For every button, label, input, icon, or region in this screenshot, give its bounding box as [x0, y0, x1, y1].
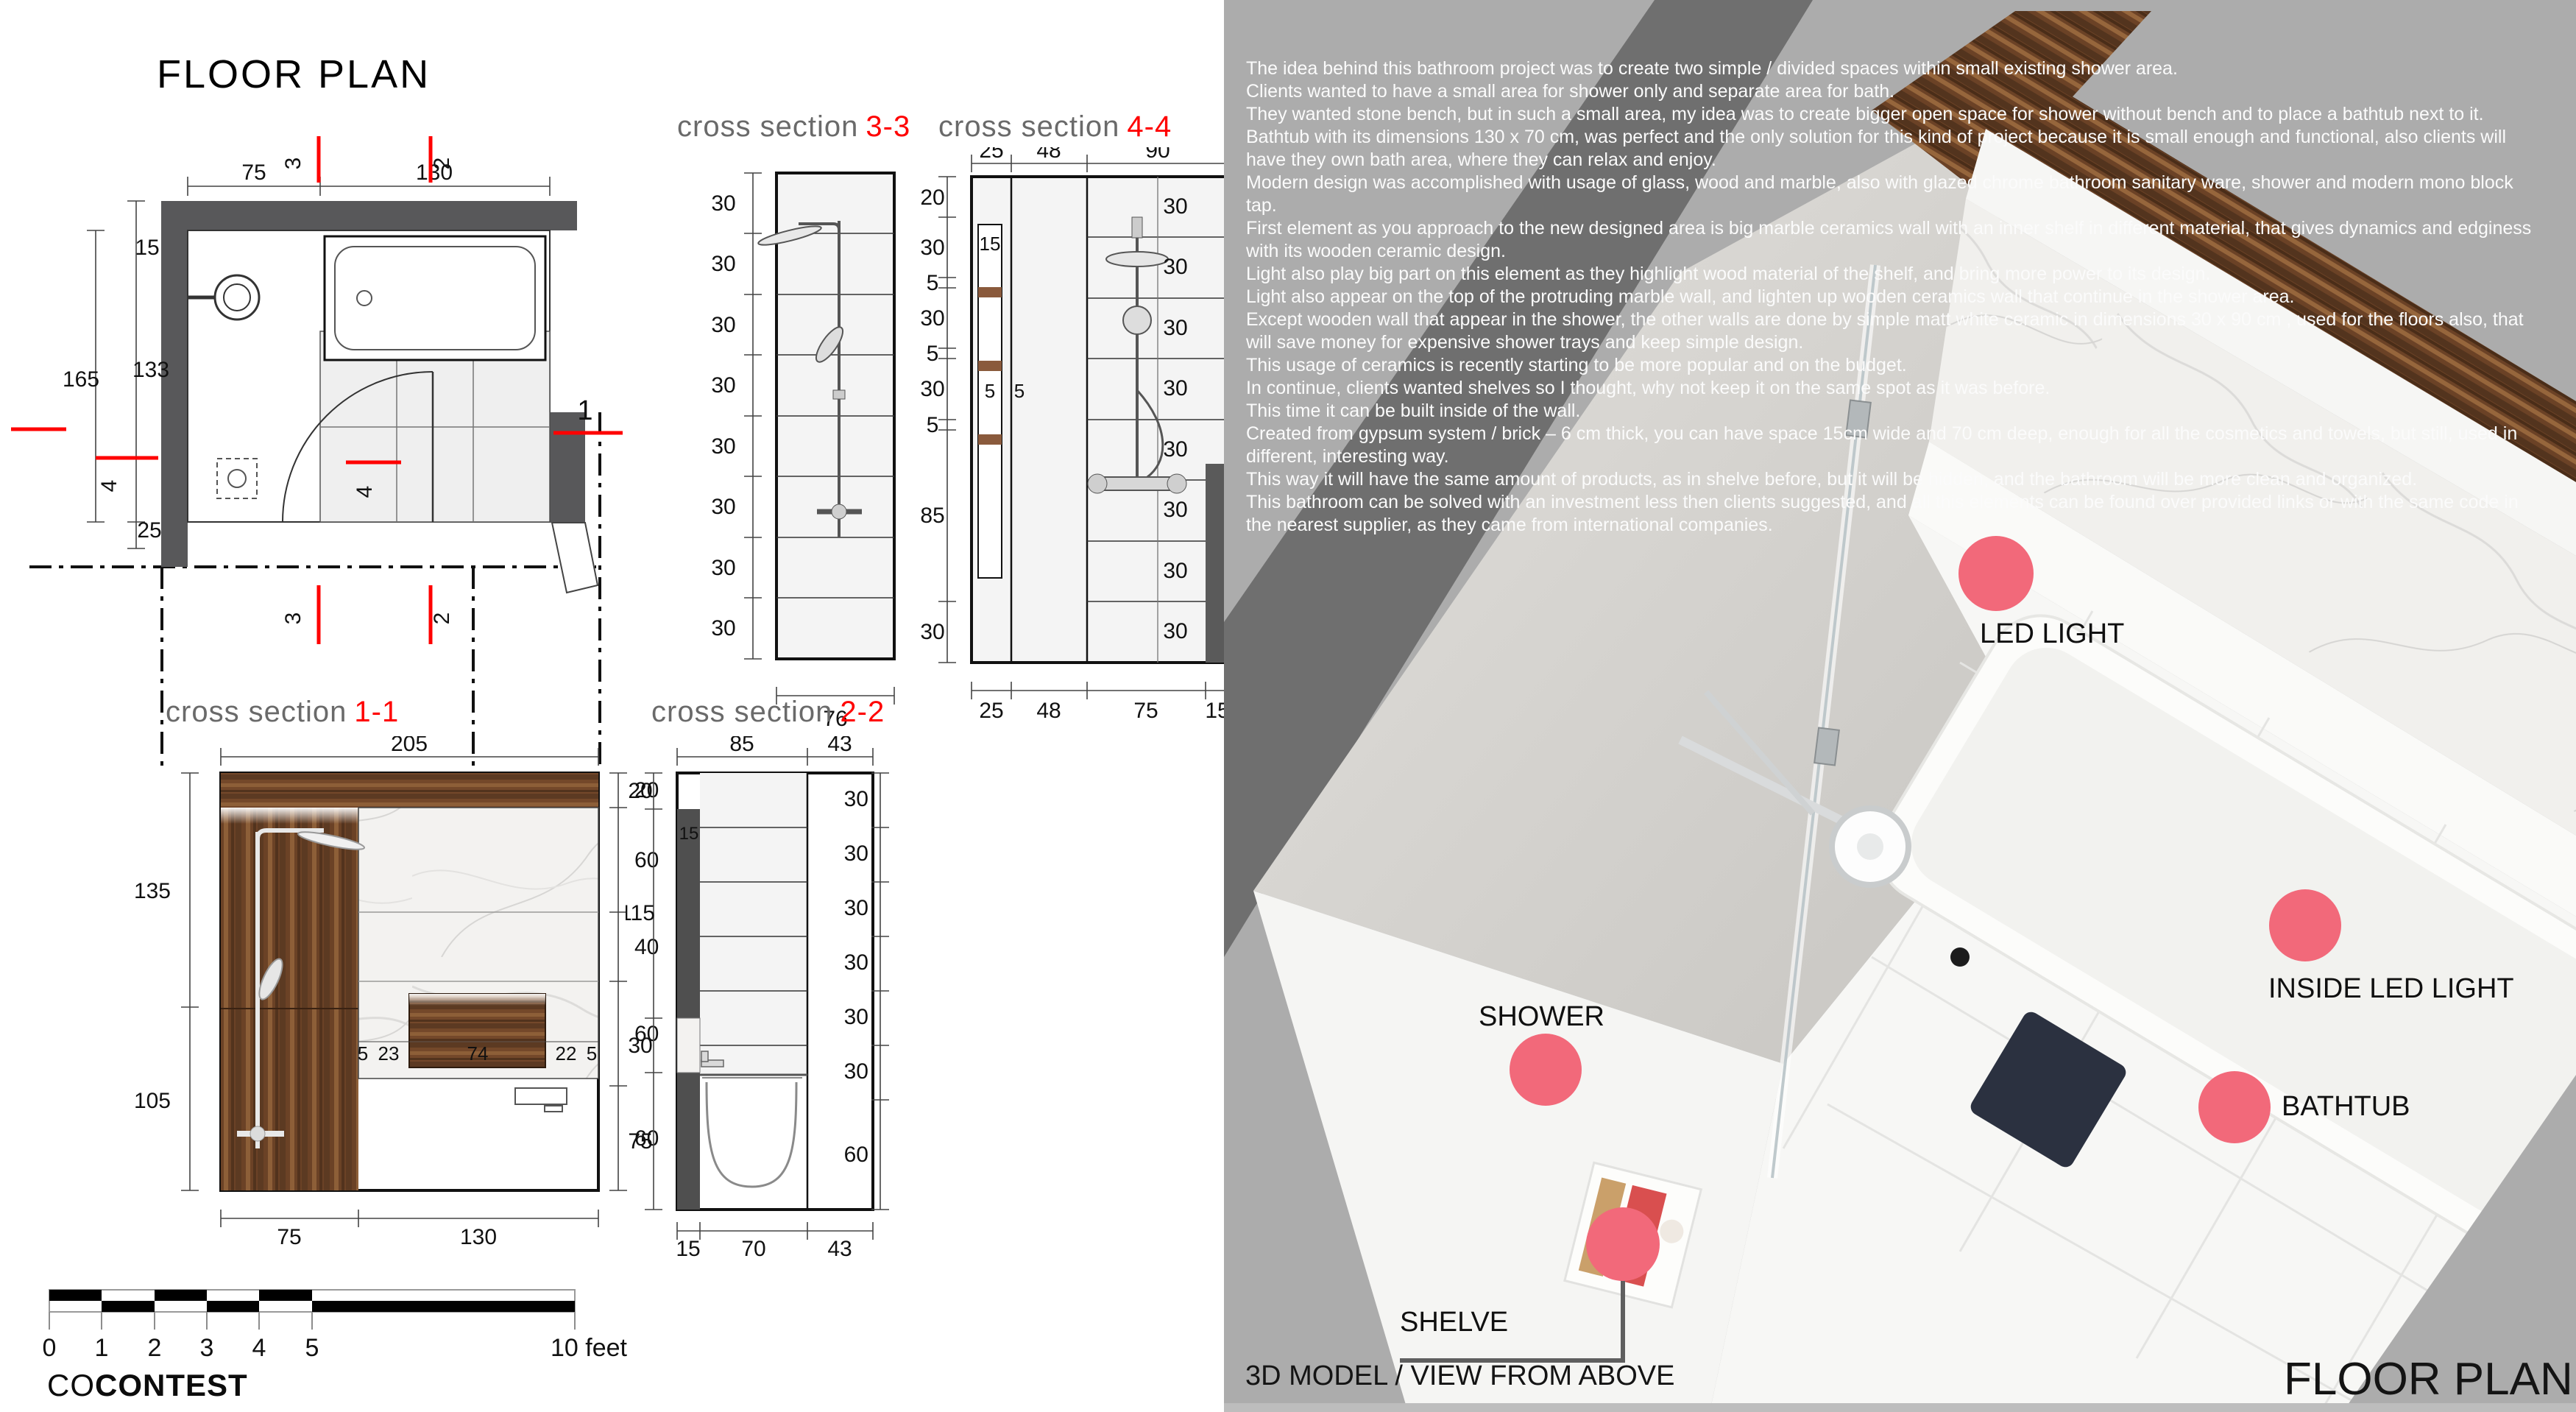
dim-label: 30: [711, 252, 735, 276]
dim-label: 5: [985, 380, 995, 402]
dim-label: 30: [1163, 559, 1187, 583]
dim-label: 30: [920, 236, 944, 260]
led-light-dot: [1958, 536, 2034, 611]
desc-line: Except wooden wall that appear in the sh…: [1246, 308, 2543, 354]
dim-label: 15: [679, 824, 699, 844]
dim-label: 30: [920, 377, 944, 401]
dim-label: 15: [135, 236, 159, 260]
dim-label: 165: [63, 367, 99, 392]
drain-dot: [1950, 947, 1970, 967]
dim-label: 43: [827, 736, 852, 756]
desc-line: This usage of ceramics is recently start…: [1246, 354, 2543, 377]
dim-label: 30: [711, 191, 735, 216]
dim-label: 85: [920, 504, 944, 528]
bathtub-label: BATHTUB: [2282, 1091, 2410, 1123]
dim-label: 30: [1163, 619, 1187, 643]
desc-line: First element as you approach to the new…: [1246, 217, 2543, 263]
desc-line: Created from gypsum system / brick – 6 c…: [1246, 423, 2543, 468]
cs22-drawing: 85 43 20 115 30 75 15 30 30 30 30 30 30 …: [626, 736, 891, 1266]
cs11-drawing: 205 135 105 20 60 40 60 60 5 23 74 22 5 …: [103, 736, 692, 1252]
page-title: FLOOR PLAN: [157, 52, 431, 97]
dim-label: 205: [391, 736, 428, 756]
desc-line: They wanted stone bench, but in such a s…: [1246, 103, 2543, 126]
project-description: The idea behind this bathroom project wa…: [1246, 57, 2543, 537]
dim-label: 70: [741, 1237, 765, 1261]
dim-label: 5: [927, 271, 939, 295]
dim-label: 74: [467, 1042, 489, 1065]
plan-bathtub: [325, 236, 545, 360]
dim-label: 15: [676, 1237, 700, 1261]
desc-line: Light also play big part on this element…: [1246, 263, 2543, 286]
section-label: 4: [97, 480, 121, 493]
render-panel: The idea behind this bathroom project wa…: [1224, 0, 2576, 1412]
dim-label: 30: [920, 620, 944, 644]
dim-label: 135: [134, 879, 171, 903]
dim-label: 30: [711, 616, 735, 640]
section-label: 3: [281, 158, 305, 170]
dim-label: 25: [137, 518, 161, 543]
dim-label: 60: [844, 1143, 868, 1167]
cocontest-logo: COCONTEST: [47, 1368, 248, 1403]
cs44-title: cross section4-4: [938, 110, 1172, 144]
model-caption: 3D MODEL / VIEW FROM ABOVE: [1245, 1360, 1674, 1392]
dim-label: 130: [460, 1225, 497, 1249]
scale-tick-label: 1: [95, 1334, 109, 1362]
dim-label: 75: [628, 1129, 652, 1154]
dim-label: 5: [927, 413, 939, 437]
dim-label: 20: [920, 186, 944, 210]
dim-label: 30: [711, 495, 735, 519]
cs11-top-wood-band: [221, 773, 598, 808]
dim-label: 75: [277, 1225, 301, 1249]
shower-label: SHOWER: [1479, 1001, 1604, 1033]
led-light-label: LED LIGHT: [1980, 618, 2124, 650]
cs44-drawing: 25 48 90 20 30 5 30 5 30 5 85 30 15 5 5 …: [916, 147, 1277, 758]
dim-label: 5: [1014, 380, 1025, 402]
cs33-title: cross section3-3: [677, 110, 910, 144]
dim-label: 30: [844, 787, 868, 811]
section-label: 4: [353, 486, 377, 498]
dim-label: 5: [927, 342, 939, 366]
shelve-label: SHELVE: [1400, 1307, 1508, 1338]
inside-led-light-dot: [2269, 889, 2341, 961]
cs22-title: cross section2-2: [651, 696, 885, 729]
desc-line: Clients wanted to have a small area for …: [1246, 80, 2543, 103]
dim-label: 30: [920, 306, 944, 331]
dim-label: 85: [729, 736, 754, 756]
dim-label: 30: [1163, 316, 1187, 340]
dim-label: 30: [844, 896, 868, 920]
section-label: 2: [430, 613, 454, 625]
dim-label: 48: [1036, 699, 1061, 723]
dim-label: 30: [711, 556, 735, 580]
section-label: 1: [577, 395, 592, 426]
dim-label: 23: [378, 1042, 400, 1065]
desc-line: This time it can be built inside of the …: [1246, 400, 2543, 423]
dim-label: 5: [358, 1042, 368, 1065]
bathtub-dot: [2198, 1071, 2271, 1143]
dim-label: 25: [979, 147, 1003, 163]
scale-tick-label: 0: [43, 1334, 57, 1362]
shelve-dot: [1586, 1207, 1660, 1281]
dim-label: 30: [1163, 376, 1187, 400]
desc-line: This way it will have the same amount of…: [1246, 468, 2543, 491]
section-label: 2: [430, 158, 454, 170]
desc-line: Bathtub with its dimensions 130 x 70 cm,…: [1246, 126, 2543, 172]
dim-label: 30: [844, 841, 868, 866]
inside-led-light-label: INSIDE LED LIGHT: [2268, 973, 2514, 1005]
dim-label: 5: [587, 1042, 597, 1065]
dim-label: 43: [827, 1237, 852, 1261]
cs11-wood-wall: [221, 773, 358, 1190]
scale-tick-label: 5: [305, 1334, 319, 1362]
desc-line: The idea behind this bathroom project wa…: [1246, 57, 2543, 80]
dim-label: 90: [1145, 147, 1170, 163]
dim-label: 75: [1133, 699, 1158, 723]
dim-label: 105: [134, 1089, 171, 1113]
cs22-dark-wall: [677, 809, 700, 1210]
dim-label: 30: [844, 950, 868, 975]
dim-label: 30: [844, 1005, 868, 1029]
dim-label: 22: [556, 1042, 577, 1065]
desc-line: This bathroom can be solved with an inve…: [1246, 491, 2543, 537]
scale-bar: 0 1 2 3 4 5 10 feet: [29, 1281, 662, 1377]
presentation-sheet: FLOOR PLAN: [0, 0, 2576, 1412]
dim-label: 30: [844, 1059, 868, 1084]
cs11-title: cross section1-1: [166, 696, 399, 729]
dim-label: 30: [1163, 437, 1187, 462]
scale-end-label: 10 feet: [551, 1334, 628, 1362]
scale-tick-label: 3: [200, 1334, 214, 1362]
desc-line: Light also appear on the top of the prot…: [1246, 286, 2543, 308]
scale-tick-label: 2: [148, 1334, 162, 1362]
floor-plan-drawing: 75 130 15 165 133 25 3 2 3 2 1 4 4: [0, 110, 677, 788]
dim-label: 75: [241, 160, 266, 185]
dim-label: 30: [628, 1034, 652, 1058]
dim-label: 30: [711, 313, 735, 337]
dim-label: 48: [1036, 147, 1061, 163]
dim-label: 30: [711, 373, 735, 398]
dim-label: 30: [711, 434, 735, 459]
dim-label: 30: [1163, 498, 1187, 522]
dim-label: 115: [626, 901, 655, 925]
dim-label: 15: [980, 233, 1001, 255]
desc-line: In continue, clients wanted shelves so I…: [1246, 377, 2543, 400]
dim-label: 25: [979, 699, 1003, 723]
shower-dot: [1510, 1034, 1582, 1106]
scale-tick-label: 4: [252, 1334, 266, 1362]
dim-label: 20: [628, 779, 652, 803]
dim-label: 30: [1163, 255, 1187, 279]
section-label: 3: [281, 613, 305, 625]
render-title: FLOOR PLAN: [2284, 1353, 2573, 1405]
dim-label: 133: [132, 358, 169, 382]
desc-line: Modern design was accomplished with usag…: [1246, 172, 2543, 217]
dim-label: 30: [1163, 194, 1187, 219]
